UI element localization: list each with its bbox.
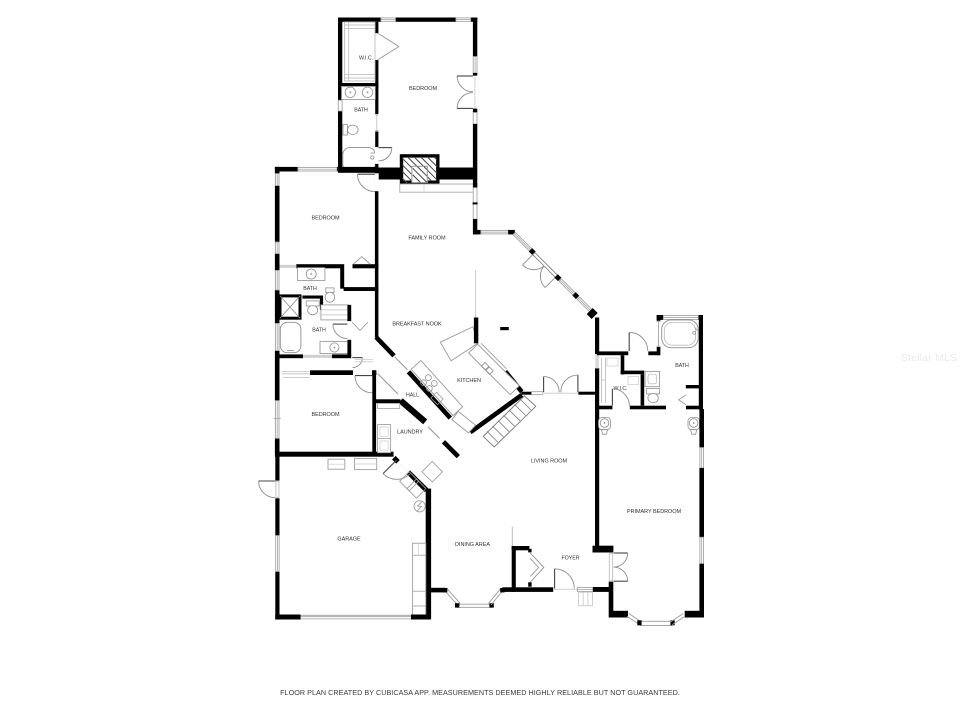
svg-text:GARAGE: GARAGE — [337, 537, 361, 543]
svg-text:BATH: BATH — [354, 108, 368, 114]
svg-text:FLOOR PLAN CREATED BY CUBICASA: FLOOR PLAN CREATED BY CUBICASA APP. MEAS… — [280, 688, 680, 697]
svg-text:DINING AREA: DINING AREA — [455, 542, 490, 548]
svg-text:PRIMARY BEDROOM: PRIMARY BEDROOM — [627, 509, 682, 515]
svg-text:Stellar MLS: Stellar MLS — [901, 352, 957, 364]
svg-text:FAMILY ROOM: FAMILY ROOM — [408, 236, 446, 242]
svg-text:W.I.C.: W.I.C. — [359, 56, 373, 62]
svg-text:BEDROOM: BEDROOM — [409, 86, 438, 92]
svg-text:BEDROOM: BEDROOM — [311, 216, 340, 222]
svg-text:BATH: BATH — [312, 328, 326, 334]
svg-text:FOYER: FOYER — [562, 556, 580, 562]
svg-text:KITCHEN: KITCHEN — [457, 378, 481, 384]
svg-text:BEDROOM: BEDROOM — [311, 412, 340, 418]
svg-text:LAUNDRY: LAUNDRY — [397, 429, 423, 435]
svg-text:LIVING ROOM: LIVING ROOM — [531, 459, 568, 465]
svg-text:HALL: HALL — [406, 393, 419, 399]
svg-text:BATH: BATH — [675, 363, 689, 369]
svg-text:BREAKFAST NOOK: BREAKFAST NOOK — [392, 322, 442, 328]
svg-text:BATH: BATH — [303, 286, 317, 292]
